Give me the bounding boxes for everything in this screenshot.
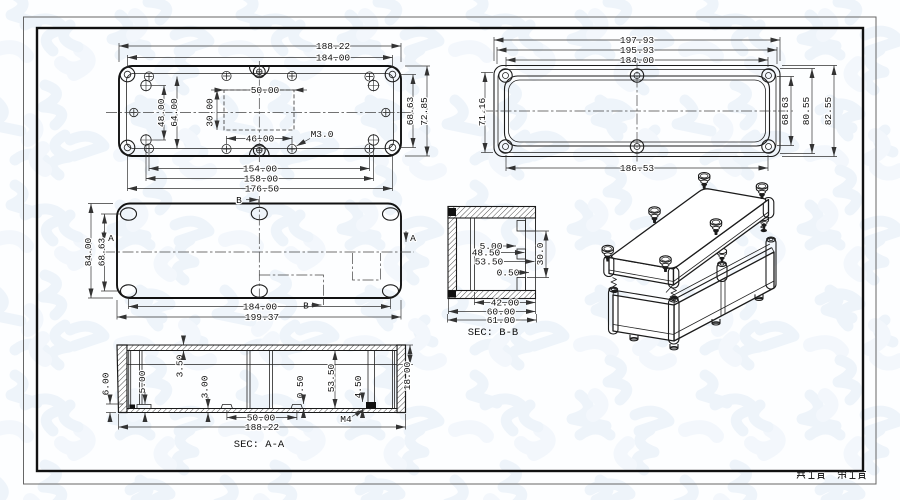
svg-text:SEC: A-A: SEC: A-A <box>234 439 285 451</box>
svg-text:3.50: 3.50 <box>175 354 186 377</box>
svg-text:186.53: 186.53 <box>620 163 655 174</box>
svg-text:61.00: 61.00 <box>487 315 516 326</box>
svg-text:0.50: 0.50 <box>497 268 520 279</box>
svg-text:5.00: 5.00 <box>137 370 148 393</box>
svg-text:M4: M4 <box>340 414 352 425</box>
svg-text:184.00: 184.00 <box>620 55 655 66</box>
svg-text:68.63: 68.63 <box>405 96 416 125</box>
svg-text:48.00: 48.00 <box>156 98 167 127</box>
svg-text:71.16: 71.16 <box>477 97 488 126</box>
svg-text:82.55: 82.55 <box>823 96 834 125</box>
svg-text:A: A <box>108 233 114 244</box>
svg-text:84.00: 84.00 <box>83 237 94 266</box>
svg-text:176.50: 176.50 <box>245 184 280 195</box>
svg-text:188.22: 188.22 <box>245 422 280 433</box>
svg-text:53.50: 53.50 <box>475 257 504 268</box>
svg-text:18.00: 18.00 <box>402 361 413 390</box>
svg-text:50.00: 50.00 <box>251 85 280 96</box>
svg-text:B: B <box>303 301 309 312</box>
svg-text:A: A <box>410 233 416 244</box>
svg-text:B: B <box>236 195 242 206</box>
svg-text:184.00: 184.00 <box>243 302 278 313</box>
svg-text:30.0: 30.0 <box>535 242 546 265</box>
svg-text:72.85: 72.85 <box>419 97 430 126</box>
svg-text:64.00: 64.00 <box>169 98 180 127</box>
svg-text:0.50: 0.50 <box>295 375 306 398</box>
svg-text:68.63: 68.63 <box>97 237 108 266</box>
svg-text:68.63: 68.63 <box>780 96 791 125</box>
svg-text:53.50: 53.50 <box>326 363 337 392</box>
svg-text:6.00: 6.00 <box>101 372 112 395</box>
svg-text:46.00: 46.00 <box>246 134 275 145</box>
svg-text:3.00: 3.00 <box>200 375 211 398</box>
svg-text:199.37: 199.37 <box>245 312 279 323</box>
svg-text:188.22: 188.22 <box>316 41 351 52</box>
svg-text:SEC: B-B: SEC: B-B <box>468 327 518 339</box>
svg-text:80.55: 80.55 <box>801 96 812 125</box>
svg-text:184.00: 184.00 <box>316 53 351 64</box>
svg-text:30.00: 30.00 <box>205 98 216 127</box>
svg-text:M3.0: M3.0 <box>311 129 334 140</box>
